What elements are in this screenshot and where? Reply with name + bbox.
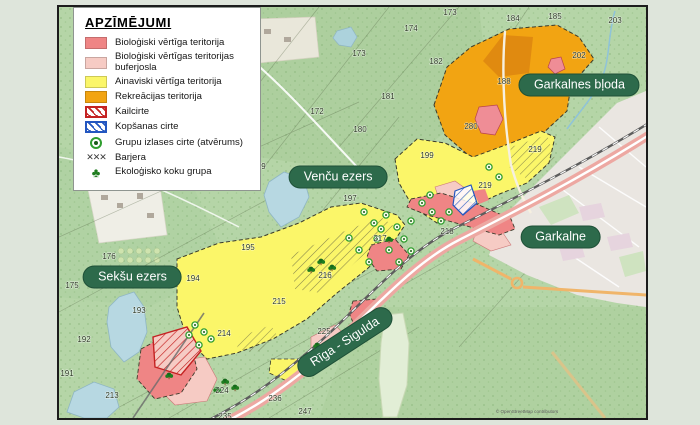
legend-item-label: Bioloģiski vērtīga teritorija (115, 38, 224, 49)
compartment-number: 188 (497, 77, 511, 86)
compartment-number: 199 (420, 151, 434, 160)
legend: APZĪMĒJUMI Bioloģiski vērtīga teritorija… (73, 7, 261, 191)
map-canvas: 1731741841852032021821731811721801882801… (57, 5, 648, 420)
compartment-number: 215 (272, 297, 286, 306)
compartment-number: 217 (373, 234, 387, 243)
legend-items: Bioloģiski vērtīga teritorijaBioloģiski … (85, 37, 252, 178)
legend-item-label: Kailcirte (115, 107, 149, 118)
compartment-number: 203 (608, 16, 622, 25)
legend-item-label: Ainaviski vērtīga teritorija (115, 77, 222, 88)
compartment-number: 235 (218, 412, 232, 418)
legend-title: APZĪMĒJUMI (85, 15, 252, 30)
legend-item: Kopšanas cirte (85, 121, 252, 133)
compartment-number: 172 (310, 107, 324, 116)
compartment-number: 185 (548, 12, 562, 21)
legend-item-label: Bioloģiski vērtīgas teritorijas buferjos… (115, 52, 252, 73)
legend-swatch-tree-icon: ♣ (85, 167, 107, 178)
compartment-number: 225 (317, 327, 331, 336)
compartment-number: 194 (186, 274, 200, 283)
legend-item: ♣Ekoloģisko koku grupa (85, 167, 252, 178)
compartment-number: 219 (528, 145, 542, 154)
compartment-number: 214 (217, 329, 231, 338)
legend-item-label: Barjera (115, 153, 146, 164)
legend-swatch-barrier: ✕✕✕ (85, 153, 107, 163)
legend-item-label: Rekreācijas teritorija (115, 92, 202, 103)
legend-swatch-hatch (85, 106, 107, 118)
legend-item: ✕✕✕Barjera (85, 153, 252, 164)
compartment-number: 181 (381, 92, 395, 101)
map-label-pill: Venču ezers (289, 166, 388, 189)
legend-item: Bioloģiski vērtīga teritorija (85, 37, 252, 49)
legend-item: Kailcirte (85, 106, 252, 118)
legend-item: Ainaviski vērtīga teritorija (85, 76, 252, 88)
compartment-number: 176 (102, 252, 116, 261)
compartment-number: 195 (241, 243, 255, 252)
legend-item-label: Ekoloģisko koku grupa (115, 167, 212, 178)
legend-swatch-hatch (85, 121, 107, 133)
legend-swatch-circle-icon (85, 136, 107, 150)
compartment-number: 213 (105, 391, 119, 400)
legend-swatch-solid (85, 76, 107, 88)
compartment-number: 219 (478, 181, 492, 190)
page: { "colors": { "page_bg": "#dee5db", "for… (0, 0, 700, 425)
compartment-number: 191 (60, 369, 74, 378)
compartment-number: 236 (268, 394, 282, 403)
compartment-number: 174 (404, 24, 418, 33)
compartment-number: 197 (343, 194, 357, 203)
compartment-number: 182 (429, 57, 443, 66)
compartment-number: 280 (464, 122, 478, 131)
compartment-number: 192 (77, 335, 91, 344)
legend-swatch-solid (85, 91, 107, 103)
compartment-number: 202 (572, 51, 586, 60)
compartment-number: 175 (65, 281, 79, 290)
legend-item: Bioloģiski vērtīgas teritorijas buferjos… (85, 52, 252, 73)
compartment-number: 218 (440, 227, 454, 236)
legend-item-label: Kopšanas cirte (115, 122, 178, 133)
legend-item-label: Grupu izlases cirte (atvērums) (115, 138, 243, 149)
compartment-number: 173 (352, 49, 366, 58)
compartment-number: 180 (353, 125, 367, 134)
map-label-pill: Garkalnes bļoda (519, 74, 640, 97)
legend-swatch-solid (85, 57, 107, 69)
legend-item: Rekreācijas teritorija (85, 91, 252, 103)
map-attribution: © OpenStreetMap contributors (496, 408, 559, 414)
compartment-number: 184 (506, 14, 520, 23)
compartment-number: 173 (443, 8, 457, 17)
compartment-number: 216 (318, 271, 332, 280)
map-label-pill: Sekšu ezers (83, 266, 182, 289)
compartment-number: 193 (132, 306, 146, 315)
legend-item: Grupu izlases cirte (atvērums) (85, 136, 252, 150)
compartment-number: 224 (215, 386, 229, 395)
legend-swatch-solid (85, 37, 107, 49)
compartment-number: 247 (298, 407, 312, 416)
map-label-pill: Garkalne (520, 225, 601, 248)
